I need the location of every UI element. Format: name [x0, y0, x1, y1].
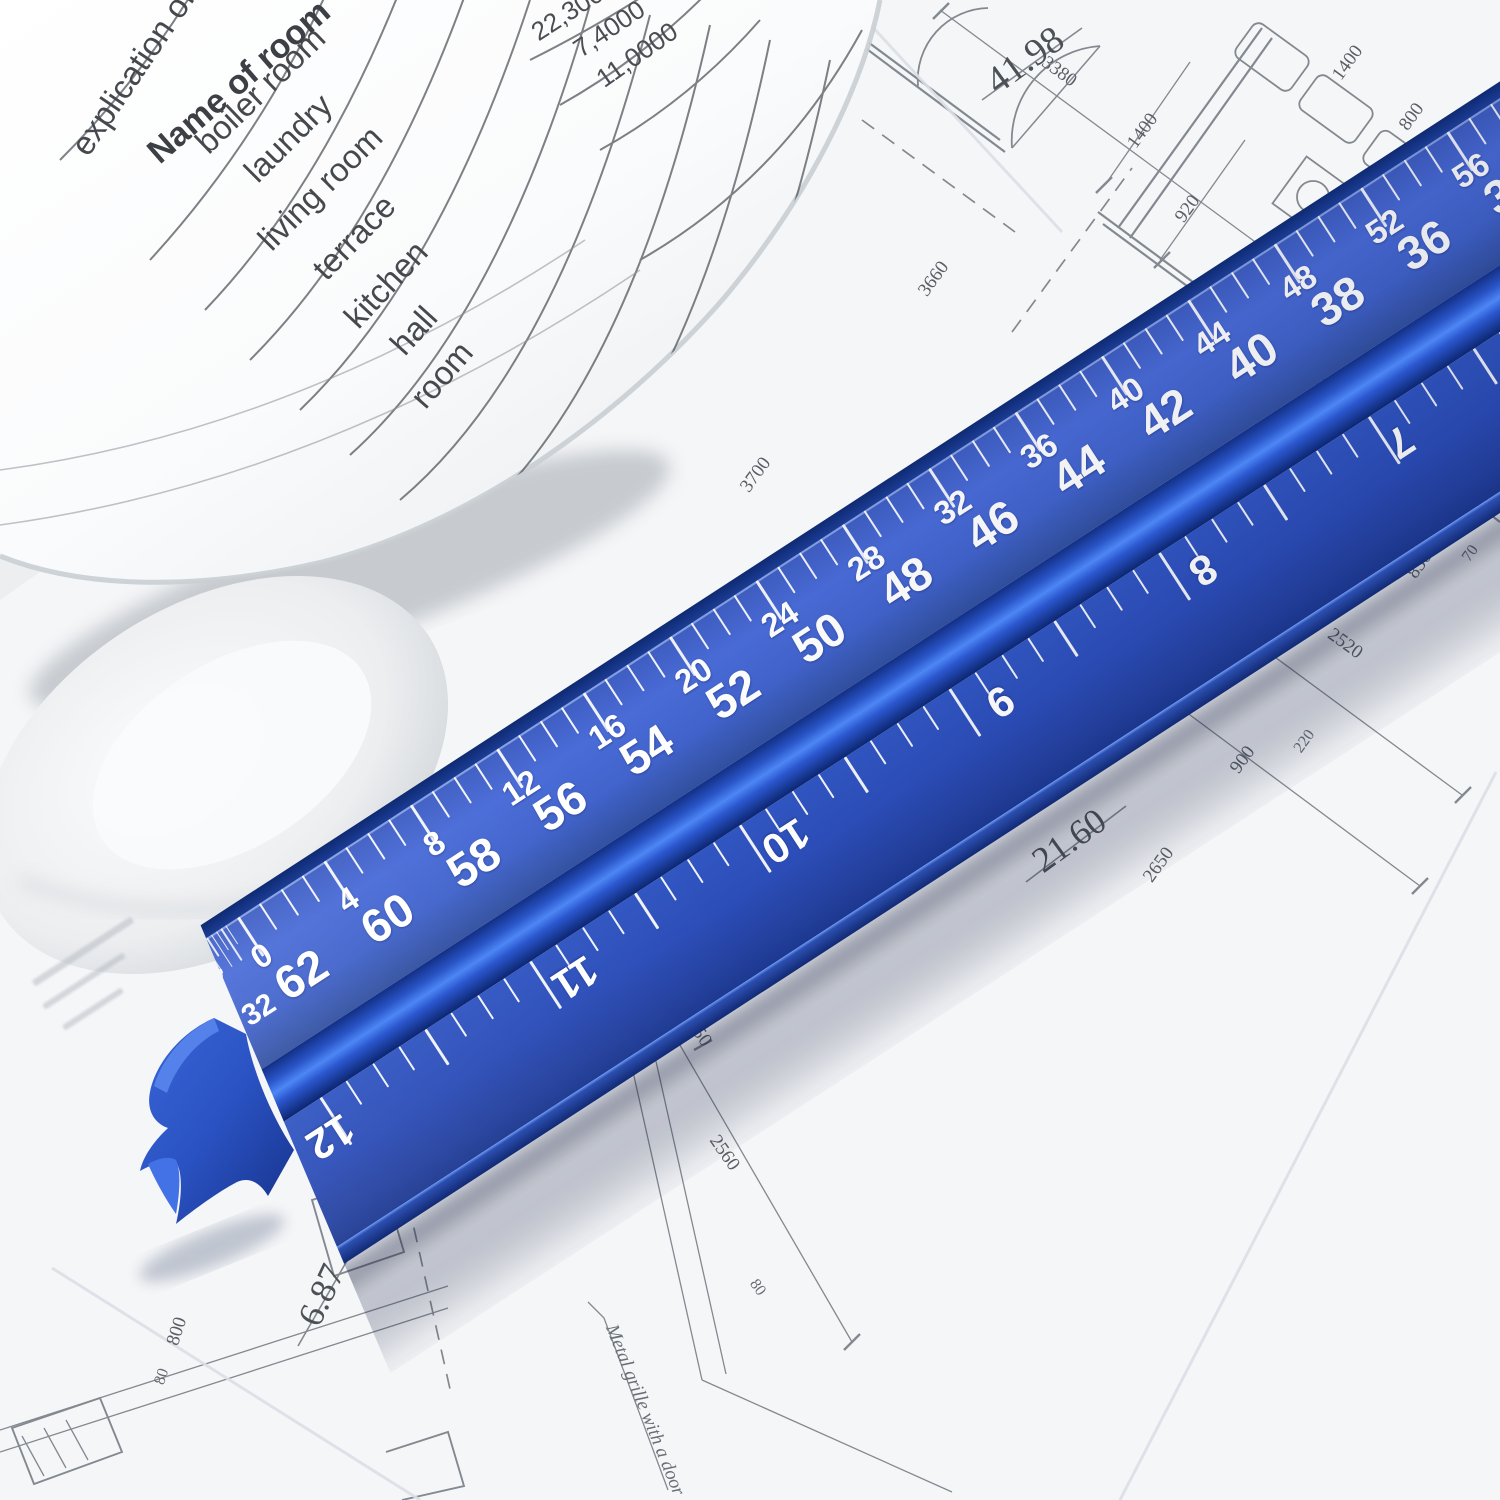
scale-tick — [583, 692, 611, 732]
scale-tick — [367, 833, 386, 860]
ruler-scale-number: 60 — [350, 881, 424, 956]
scale-tick — [1468, 118, 1487, 145]
scale-tick — [302, 875, 321, 902]
ruler-scale-number: 52 — [1359, 201, 1410, 253]
ruler-scale-number: 38 — [1300, 264, 1374, 339]
scale-tick — [713, 842, 730, 867]
scale-tick — [1315, 451, 1332, 476]
scale-tick — [660, 876, 677, 901]
scale-tick — [1446, 131, 1474, 171]
scale-tick — [1425, 146, 1444, 173]
scale-tick — [734, 595, 753, 622]
scale-tick — [431, 791, 450, 818]
scale-tick — [870, 740, 887, 765]
scale-tick — [475, 763, 494, 790]
ruler-scale-number: 8 — [1180, 543, 1226, 596]
scale-tick — [280, 889, 299, 916]
scale-tick — [799, 553, 818, 580]
scale-tick — [820, 539, 839, 566]
scale-tick — [950, 454, 969, 481]
dim-800-a: 800 — [1395, 99, 1429, 134]
ruler-scale-number: 16 — [581, 706, 632, 758]
scale-tick — [1122, 342, 1141, 369]
scale-tick — [1027, 638, 1044, 663]
ruler-scale-number: 46 — [955, 488, 1029, 563]
scale-tick — [1446, 366, 1463, 391]
scale-tick — [1252, 258, 1271, 285]
scale-tick — [410, 804, 438, 844]
ruler-scale-number: 32 — [927, 481, 978, 533]
scale-tick — [323, 861, 351, 901]
scale-tick — [1295, 230, 1314, 257]
scale-tick — [626, 665, 645, 692]
scale-tick — [1230, 272, 1249, 299]
scale-tick — [686, 859, 703, 884]
scale-tick — [971, 440, 990, 467]
scale-tick — [1001, 655, 1018, 680]
ruler-scale-number: 48 — [869, 544, 943, 619]
scale-tick — [1144, 328, 1163, 355]
scale-tick — [220, 928, 242, 961]
scale-tick — [1490, 104, 1500, 131]
scale-tick — [817, 774, 834, 799]
ruler-scale-number: 56 — [523, 769, 597, 844]
product-photo-canvas: 41.98 65.49 21.20 21.60 5.22 6.87 3380 9… — [0, 0, 1500, 1500]
scale-tick — [1368, 416, 1401, 465]
note-metal-grille: Metal grille with a door — [601, 1320, 689, 1499]
scale-tick — [1036, 398, 1055, 425]
scale-tick — [975, 672, 992, 697]
scale-tick — [604, 679, 623, 706]
scale-tick — [993, 426, 1012, 453]
ruler-scale-number: 11 — [543, 946, 606, 1010]
dim-3660: 3660 — [914, 257, 953, 300]
scale-tick — [765, 808, 782, 833]
scale-tick — [225, 925, 238, 944]
scale-tick — [842, 524, 870, 564]
ruler-scale-number: 58 — [437, 825, 511, 900]
scale-tick — [555, 944, 572, 969]
ruler-scale-number: 24 — [754, 593, 805, 645]
scale-tick — [539, 721, 558, 748]
ruler-scale-number: 7 — [1377, 415, 1423, 468]
scale-tick — [647, 651, 666, 678]
scale-tick — [928, 468, 956, 508]
ruler-scale-number: 56 — [1445, 145, 1496, 197]
scale-tick — [669, 636, 697, 676]
scale-tick — [712, 609, 731, 636]
scale-tick — [1338, 202, 1357, 229]
dim-920: 920 — [1171, 191, 1205, 226]
scale-tick — [1342, 434, 1359, 459]
scale-tick — [496, 748, 524, 788]
scale-tick — [345, 847, 364, 874]
scale-tick — [896, 723, 913, 748]
ruler-scale-number: 54 — [609, 712, 683, 787]
scale-tick — [1211, 519, 1228, 544]
scale-tick — [1184, 536, 1201, 561]
ruler-scale-number: 34 — [1473, 151, 1500, 226]
ruler-scale-number: 12 — [495, 762, 546, 814]
scale-tick — [1263, 484, 1288, 521]
ruler-scale-number: 9 — [977, 675, 1023, 728]
scale-tick — [885, 496, 904, 523]
dim-1400-b: 1400 — [1328, 41, 1367, 84]
scale-tick — [529, 961, 562, 1010]
scale-tick — [1106, 587, 1123, 612]
ruler-scale-number: 44 — [1041, 432, 1115, 507]
scale-tick — [777, 567, 796, 594]
scale-tick — [1101, 356, 1129, 396]
endcap-spike — [148, 1158, 179, 1214]
scale-tick — [582, 927, 599, 952]
ruler-scale-number: 36 — [1387, 208, 1461, 283]
scale-tick — [451, 1012, 468, 1037]
scale-tick — [259, 903, 278, 930]
scale-tick — [477, 995, 494, 1020]
scale-tick — [216, 931, 229, 950]
scale-tick — [1360, 187, 1388, 227]
scale-tick — [1274, 243, 1302, 283]
scale-tick — [907, 482, 926, 509]
ruler-scale-number: 36 — [1013, 425, 1064, 477]
ruler-scale-number: 40 — [1214, 320, 1288, 395]
ruler-scale-number: 10 — [753, 808, 818, 874]
scale-tick — [1166, 314, 1185, 341]
ruler-scale-number: 50 — [782, 600, 856, 675]
scale-tick — [863, 510, 882, 537]
scale-tick — [1053, 621, 1078, 658]
dim-1400-a: 1400 — [1123, 109, 1162, 152]
scale-tick — [1237, 502, 1254, 527]
ruler-scale-number: 20 — [668, 650, 719, 702]
scale-tick — [791, 791, 808, 816]
scale-tick — [237, 917, 265, 957]
scale-tick — [1079, 370, 1098, 397]
scale-tick — [948, 688, 981, 737]
scale-tick — [739, 824, 772, 873]
ruler-scale-number: 28 — [841, 537, 892, 589]
ruler-scale-number: 52 — [696, 656, 770, 731]
scale-tick — [608, 910, 625, 935]
scale-tick — [1080, 604, 1097, 629]
scale-tick — [518, 735, 537, 762]
scale-tick — [1317, 216, 1336, 243]
scale-tick — [922, 706, 939, 731]
scale-tick — [1382, 174, 1401, 201]
scale-tick — [1420, 383, 1437, 408]
scale-tick — [1058, 384, 1077, 411]
scale-tick — [1015, 412, 1043, 452]
scale-tick — [1403, 160, 1422, 187]
scale-tick — [424, 1029, 449, 1066]
ruler-scale-number: 42 — [1128, 376, 1202, 451]
scale-tick — [1394, 400, 1411, 425]
ruler-scale-number: 40 — [1100, 369, 1151, 421]
ruler-scale-number: 48 — [1272, 257, 1323, 309]
scale-tick — [561, 707, 580, 734]
scale-tick — [453, 777, 472, 804]
ruler-end-cap — [0, 960, 420, 1380]
ruler-scale-number: 4 — [330, 879, 366, 921]
scale-tick — [1158, 552, 1191, 601]
scale-tick — [1289, 468, 1306, 493]
scale-tick — [1209, 286, 1228, 313]
scale-tick — [634, 893, 659, 930]
ruler-scale-number: 8 — [416, 823, 452, 865]
scale-tick — [1473, 348, 1498, 385]
scale-tick — [691, 623, 710, 650]
scale-tick — [503, 978, 520, 1003]
ruler-scale-number: 44 — [1186, 313, 1237, 365]
scale-tick — [844, 757, 869, 794]
scale-tick — [388, 819, 407, 846]
scale-tick — [1132, 570, 1149, 595]
scale-tick — [755, 580, 783, 620]
dim-80-a: 80 — [746, 1276, 769, 1299]
scale-tick — [1187, 300, 1215, 340]
